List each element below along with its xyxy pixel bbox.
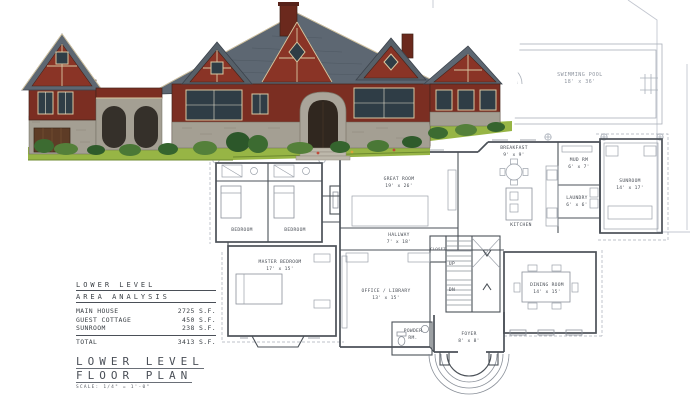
room-dims: 7' x 18' <box>387 239 412 245</box>
room-label: BEDROOM <box>231 227 252 233</box>
sheet-title-line1: LOWER LEVEL <box>76 355 204 369</box>
room-label: GREAT ROOM <box>384 176 415 182</box>
area-total-value: 3413 S.F. <box>178 338 216 346</box>
staircase: UP DN <box>446 236 500 312</box>
area-row: MAIN HOUSE 2725 S.F. <box>76 307 216 316</box>
fireplace-icon <box>330 186 340 214</box>
room-label: BREAKFAST <box>500 145 528 151</box>
breakfast-table-icon <box>500 159 528 185</box>
stairs-up-label: UP <box>449 261 455 267</box>
swimming-pool: SWIMMING POOL 18' x 36' <box>498 44 662 124</box>
room-dims: 13' x 15' <box>372 295 400 301</box>
area-analysis-block: LOWER LEVEL AREA ANALYSIS MAIN HOUSE 272… <box>76 281 216 346</box>
room-label: BEDROOM <box>284 227 305 233</box>
area-row-label: GUEST COTTAGE <box>76 316 131 325</box>
area-row-value: 2725 S.F. <box>178 307 216 316</box>
room-dims: 14' x 15' <box>533 289 561 295</box>
front-entry-steps <box>429 352 509 394</box>
room-label: OFFICE / LIBRARY <box>361 288 410 294</box>
area-total-label: TOTAL <box>76 338 97 346</box>
room-dims: 9' x 9' <box>503 152 524 158</box>
room-dims: 14' x 17' <box>616 185 644 191</box>
room-label: CLOSET <box>430 246 446 251</box>
area-analysis-title-line1: LOWER LEVEL <box>76 281 216 291</box>
area-row-label: MAIN HOUSE <box>76 307 118 316</box>
architectural-plan-sheet: SWIMMING POOL 18' x 36' <box>0 0 690 400</box>
room-dims: 8' x 8' <box>458 338 479 344</box>
house-rendering <box>22 2 520 160</box>
pool-dims: 18' x 36' <box>564 79 596 85</box>
room-label: KITCHEN <box>510 222 531 228</box>
kitchen-island-icon <box>506 166 558 226</box>
area-row-value: 450 S.F. <box>182 316 216 325</box>
room-dims: 6' x 6' <box>566 202 587 208</box>
room-dims: 17' x 15' <box>266 266 294 272</box>
room-labels: GREAT ROOM 19' x 26' HALLWAY 7' x 18' BR… <box>231 145 644 344</box>
room-label: LAUNDRY <box>566 195 587 201</box>
area-total-row: TOTAL 3413 S.F. <box>76 335 216 346</box>
room-label: POWDER <box>404 328 422 334</box>
porte-cochere <box>96 88 162 150</box>
sheet-scale-note: SCALE: 1/4" = 1'-0" <box>76 385 204 390</box>
area-analysis-rows: MAIN HOUSE 2725 S.F. GUEST COTTAGE 450 S… <box>76 307 216 346</box>
room-label: SUNROOM <box>619 178 640 184</box>
room-dims: 6' x 7' <box>568 164 589 170</box>
room-label: FOYER <box>461 331 476 337</box>
window-ticks <box>240 140 536 338</box>
sheet-title-line2: FLOOR PLAN <box>76 369 192 383</box>
pool-label: SWIMMING POOL <box>557 72 603 78</box>
area-row-label: SUNROOM <box>76 324 106 333</box>
room-label: DINING ROOM <box>530 282 564 288</box>
room-dims: 19' x 26' <box>385 183 413 189</box>
room-label: HALLWAY <box>388 232 409 238</box>
area-row: SUNROOM 238 S.F. <box>76 324 216 333</box>
sheet-title-block: LOWER LEVEL FLOOR PLAN SCALE: 1/4" = 1'-… <box>76 355 204 390</box>
room-dims: RM. <box>408 335 417 341</box>
cottage-beds-icon <box>221 165 310 218</box>
stairs-dn-label: DN <box>449 287 455 293</box>
room-label: MUD RM <box>570 157 588 163</box>
room-label: MASTER BEDROOM <box>259 259 302 265</box>
pool-ladder-icon <box>640 74 658 94</box>
area-row: GUEST COTTAGE 450 S.F. <box>76 316 216 325</box>
area-analysis-title-line2: AREA ANALYSIS <box>76 293 216 303</box>
area-row-value: 238 S.F. <box>182 324 216 333</box>
